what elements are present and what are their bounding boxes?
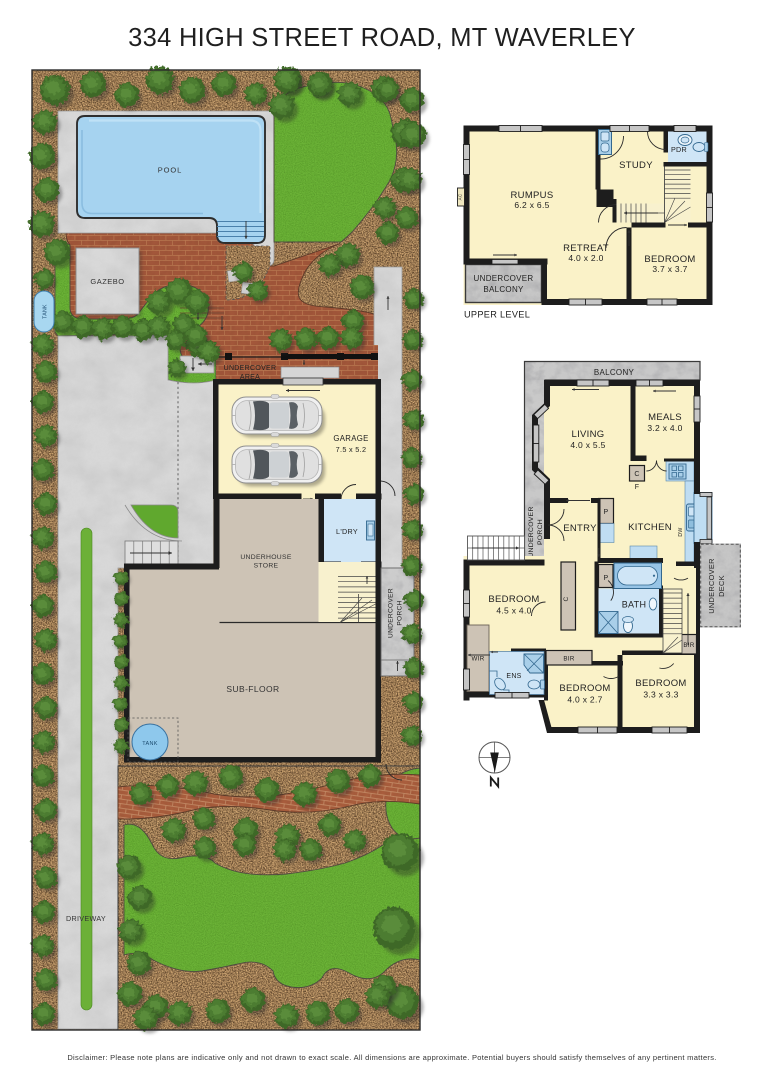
- svg-text:DECK: DECK: [717, 575, 726, 597]
- svg-text:BIR: BIR: [563, 656, 574, 663]
- svg-text:UPPER LEVEL: UPPER LEVEL: [464, 310, 530, 320]
- svg-text:BIR: BIR: [683, 642, 694, 649]
- svg-text:P: P: [604, 509, 609, 516]
- svg-text:4.0 x 2.7: 4.0 x 2.7: [567, 695, 602, 705]
- svg-text:GAZEBO: GAZEBO: [90, 277, 124, 286]
- svg-text:4.0 x 5.5: 4.0 x 5.5: [570, 440, 605, 450]
- svg-text:TANK: TANK: [142, 741, 157, 747]
- svg-text:7.5 x 5.2: 7.5 x 5.2: [336, 445, 367, 454]
- svg-text:3.3 x 3.3: 3.3 x 3.3: [643, 690, 678, 700]
- svg-text:UNDERCOVER: UNDERCOVER: [474, 274, 534, 283]
- svg-text:UNDERCOVER: UNDERCOVER: [224, 365, 277, 372]
- svg-text:DW: DW: [678, 527, 684, 536]
- svg-text:4.0 x 2.0: 4.0 x 2.0: [568, 253, 603, 263]
- svg-text:UNDERCOVER: UNDERCOVER: [388, 588, 395, 638]
- svg-text:PORCH: PORCH: [537, 519, 544, 545]
- svg-text:BEDROOM: BEDROOM: [559, 683, 610, 694]
- svg-text:BEDROOM: BEDROOM: [488, 594, 539, 605]
- svg-text:C: C: [563, 597, 570, 602]
- svg-text:3.2 x 4.0: 3.2 x 4.0: [647, 423, 682, 433]
- svg-text:L'DRY: L'DRY: [336, 527, 358, 536]
- svg-text:MEALS: MEALS: [648, 412, 682, 423]
- svg-text:DRIVEWAY: DRIVEWAY: [66, 914, 106, 923]
- svg-text:STUDY: STUDY: [619, 160, 653, 171]
- svg-text:Disclaimer: Please note plans: Disclaimer: Please note plans are indica…: [67, 1053, 716, 1062]
- svg-text:4.5 x 4.0: 4.5 x 4.0: [496, 606, 531, 616]
- svg-text:6.2 x 6.5: 6.2 x 6.5: [514, 200, 549, 210]
- svg-text:LIVING: LIVING: [572, 429, 605, 440]
- svg-text:C: C: [634, 471, 639, 478]
- svg-text:UNDERCOVER: UNDERCOVER: [528, 506, 535, 557]
- svg-text:WIR: WIR: [472, 656, 485, 663]
- svg-text:UNDERHOUSE: UNDERHOUSE: [240, 554, 292, 561]
- svg-text:PDR: PDR: [671, 145, 687, 154]
- svg-text:BALCONY: BALCONY: [594, 368, 635, 377]
- svg-text:ENTRY: ENTRY: [563, 523, 597, 534]
- svg-text:KITCHEN: KITCHEN: [628, 522, 672, 533]
- svg-text:BATH: BATH: [622, 600, 647, 610]
- svg-text:TANK: TANK: [43, 304, 49, 319]
- svg-text:GARAGE: GARAGE: [333, 434, 368, 443]
- svg-text:AC: AC: [458, 194, 463, 201]
- svg-text:ENS: ENS: [506, 673, 521, 680]
- svg-text:BALCONY: BALCONY: [483, 285, 524, 294]
- svg-text:POOL: POOL: [158, 166, 182, 175]
- svg-text:PORCH: PORCH: [397, 600, 404, 625]
- svg-text:UNDERCOVER: UNDERCOVER: [707, 558, 716, 614]
- svg-text:3.7 x 3.7: 3.7 x 3.7: [652, 264, 687, 274]
- svg-text:334 HIGH STREET ROAD, MT WAVER: 334 HIGH STREET ROAD, MT WAVERLEY: [128, 24, 636, 52]
- svg-text:F: F: [635, 484, 640, 491]
- svg-text:P: P: [604, 575, 609, 582]
- svg-text:BEDROOM: BEDROOM: [635, 678, 686, 689]
- svg-text:SUB-FLOOR: SUB-FLOOR: [226, 684, 279, 694]
